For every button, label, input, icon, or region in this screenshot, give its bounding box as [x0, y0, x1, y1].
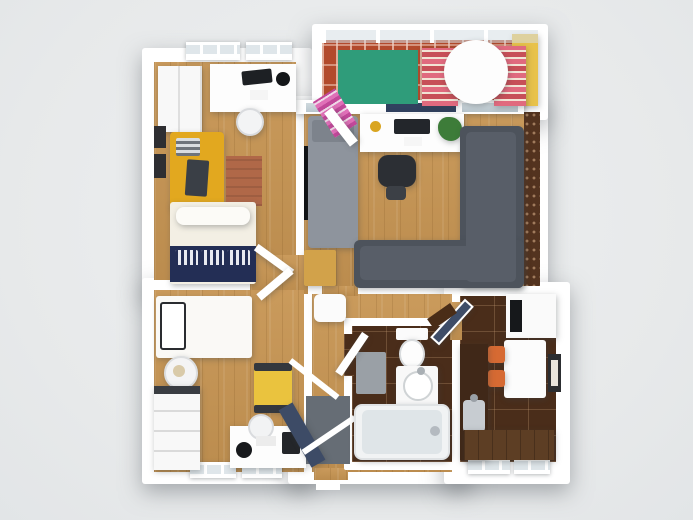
deco-bowl	[173, 365, 185, 377]
chair-bedroom1	[236, 108, 264, 136]
accent-brick-wall	[524, 112, 540, 286]
paper-bedroom1	[250, 90, 268, 100]
faucet-bathroom	[417, 367, 425, 375]
sofa-corner-cushion-h	[360, 246, 510, 280]
bed-single-pillow	[160, 302, 186, 350]
toilet-bowl	[399, 339, 425, 369]
pillow-pattern-a	[175, 250, 198, 268]
picture-frame-b	[154, 154, 166, 178]
counter-bottom	[464, 430, 554, 460]
armchair-armrest-a	[254, 363, 292, 371]
laptop-living	[394, 119, 430, 134]
picture-kitchen-art	[551, 360, 558, 386]
bath-mat	[356, 352, 386, 394]
plant-potted	[438, 117, 462, 141]
chest-wood	[304, 250, 336, 286]
window-kitchen-b	[514, 458, 550, 474]
rug-green-balcony	[338, 50, 418, 104]
page-background: { "scene": { "description": "3D rendered…	[0, 0, 693, 520]
throw-dark	[185, 159, 209, 196]
dining-table	[504, 340, 546, 398]
picture-frame-a	[154, 126, 166, 148]
pillow-pattern-b	[201, 250, 224, 268]
window-kitchen-a	[468, 458, 510, 474]
window-bedroom1-b	[246, 42, 292, 60]
chair-orange-b	[488, 370, 505, 387]
paper-living	[404, 137, 422, 146]
faucet-kitchen	[470, 394, 478, 402]
sink-round	[403, 371, 433, 401]
bed-double-pillow	[176, 207, 250, 225]
pouf-hallway	[314, 294, 346, 322]
fridge-front-panel	[510, 300, 522, 332]
keyboard-bedroom2	[256, 436, 276, 446]
dresser-top-strip	[154, 386, 200, 394]
wardrobe-bedroom1	[158, 66, 202, 132]
sink-kitchen	[463, 400, 485, 432]
balcony-glass-railing	[322, 28, 538, 43]
table-round-balcony	[444, 40, 508, 104]
dresser-bedroom2	[154, 386, 200, 470]
speaker-bedroom2	[236, 442, 252, 458]
rug-terracotta	[226, 156, 262, 206]
tub-faucet	[430, 426, 440, 436]
window-bedroom1-a	[186, 42, 240, 60]
floor-plan-render	[0, 0, 693, 520]
desk-lamp-bedroom1	[276, 72, 290, 86]
floor-opening-entry	[314, 468, 348, 480]
entry-door-threshold	[316, 482, 340, 490]
office-chair-seat	[378, 155, 416, 187]
pillow-pattern-c	[227, 250, 250, 268]
pillow-striped	[176, 138, 200, 156]
office-chair-base	[386, 186, 406, 200]
chair-orange-a	[488, 346, 505, 363]
bowl-yellow	[370, 121, 381, 132]
